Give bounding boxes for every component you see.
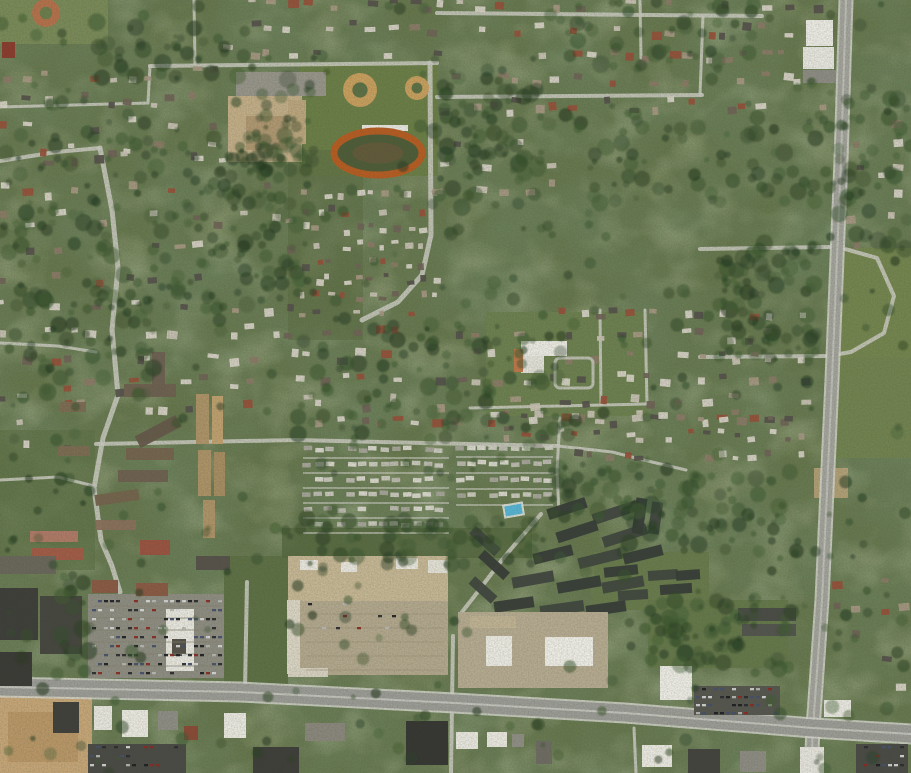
- aerial-imagery: [0, 0, 911, 773]
- grain-overlay: [0, 0, 911, 773]
- satellite-map-view[interactable]: [0, 0, 911, 773]
- film-grain: [0, 0, 911, 773]
